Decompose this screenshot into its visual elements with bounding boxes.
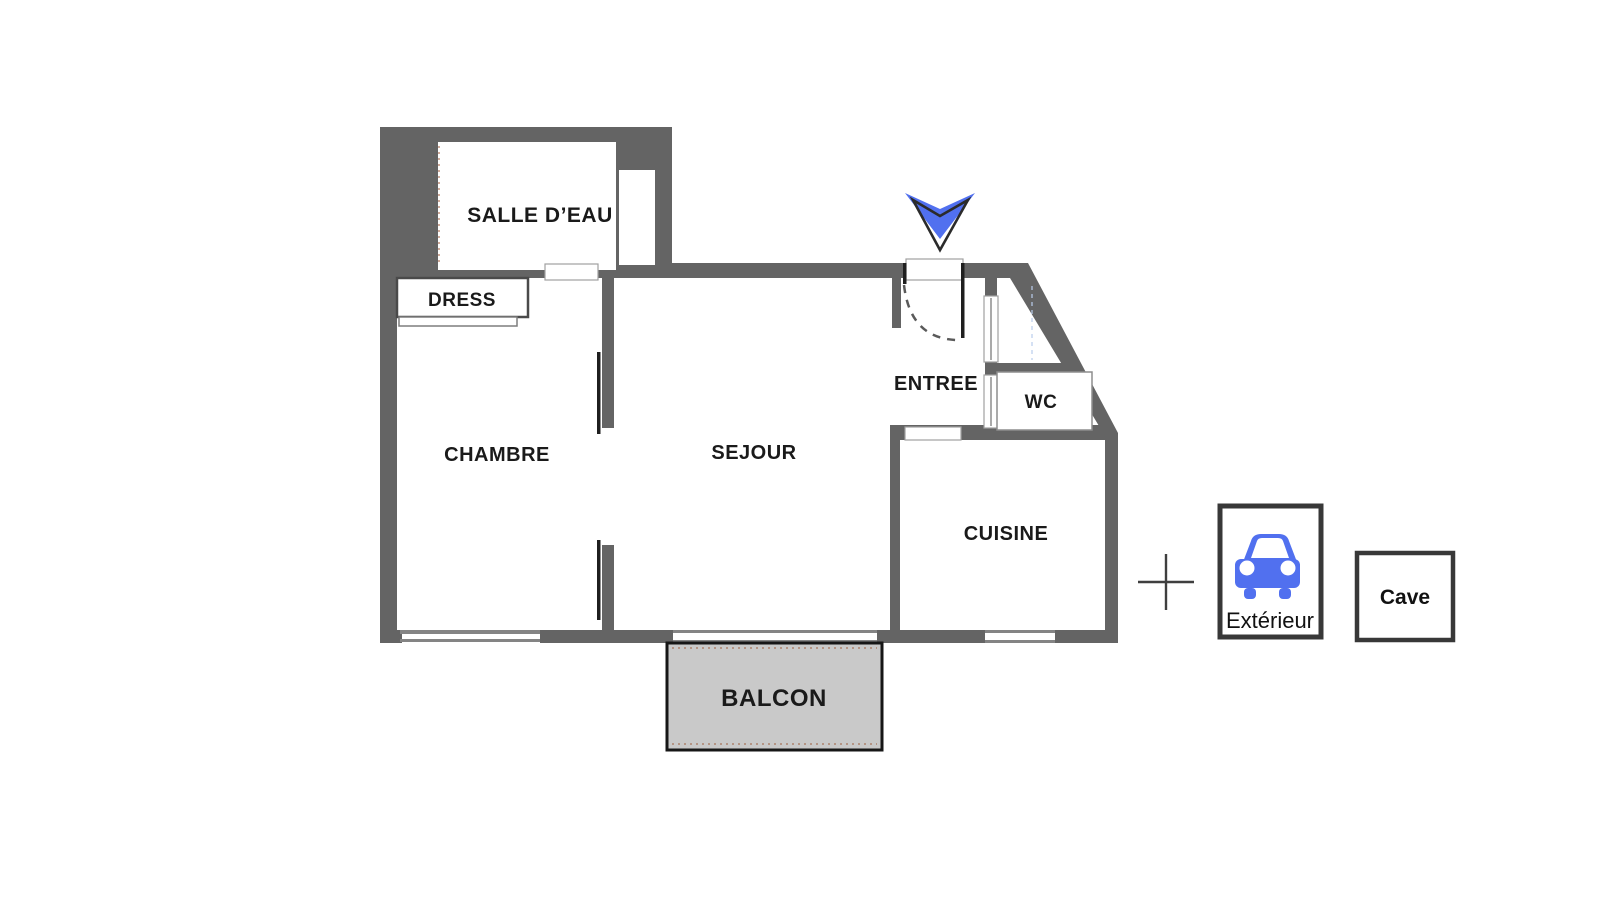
cuisine-door-opening xyxy=(905,427,961,440)
wall-closet-wc-divider xyxy=(997,363,1075,372)
background xyxy=(0,0,1600,900)
cuisine-window-line-bottom xyxy=(985,640,1055,643)
room-label-wc: WC xyxy=(1025,392,1058,413)
room-label-cuisine: CUISINE xyxy=(964,523,1049,545)
room-label-entree: ENTREE xyxy=(894,373,978,395)
car-headlight-right xyxy=(1281,561,1296,576)
cuisine-window-line-top xyxy=(985,630,1055,633)
wall-partition-lower xyxy=(602,545,614,643)
room-label-salle-deau: SALLE D’EAU xyxy=(467,204,613,227)
partition-door-leaf-lower xyxy=(597,540,601,620)
car-headlight-left xyxy=(1240,561,1255,576)
salle-deau-door-opening xyxy=(545,264,598,280)
wall-bottom-3 xyxy=(1055,630,1118,643)
chambre-window-line-top xyxy=(400,630,540,634)
wall-left xyxy=(380,278,397,643)
partition-door-leaf-upper xyxy=(597,352,601,434)
cave-box: Cave xyxy=(1357,553,1453,640)
chambre-window-line-bottom xyxy=(400,639,540,642)
floorplan-page: SALLE D’EAU DRESS CHAMBRE SEJOUR ENTREE … xyxy=(0,0,1600,900)
entry-door-leaf xyxy=(961,263,965,338)
cave-label: Cave xyxy=(1380,586,1430,609)
wall-bottom-corner xyxy=(380,630,402,643)
exterieur-label: Extérieur xyxy=(1226,608,1314,633)
room-label-balcon: BALCON xyxy=(721,685,827,712)
car-wheel-left xyxy=(1244,588,1256,599)
wall-cuisine-left xyxy=(890,425,900,643)
room-label-chambre: CHAMBRE xyxy=(444,444,550,466)
wall-partition-upper xyxy=(602,278,614,428)
car-wheel-right xyxy=(1279,588,1291,599)
wall-top xyxy=(672,263,1028,278)
wall-entry-stub xyxy=(892,278,901,328)
balcony-slider-line-top xyxy=(673,630,877,633)
entry-door-jamb xyxy=(903,263,907,284)
entry-door-opening xyxy=(906,259,963,280)
dress-sliding-doors xyxy=(399,317,517,326)
floorplan-image: SALLE D’EAU DRESS CHAMBRE SEJOUR ENTREE … xyxy=(0,0,1600,900)
exterieur-box: Extérieur xyxy=(1220,506,1321,637)
room-label-dress: DRESS xyxy=(428,290,496,311)
room-label-sejour: SEJOUR xyxy=(711,442,796,464)
